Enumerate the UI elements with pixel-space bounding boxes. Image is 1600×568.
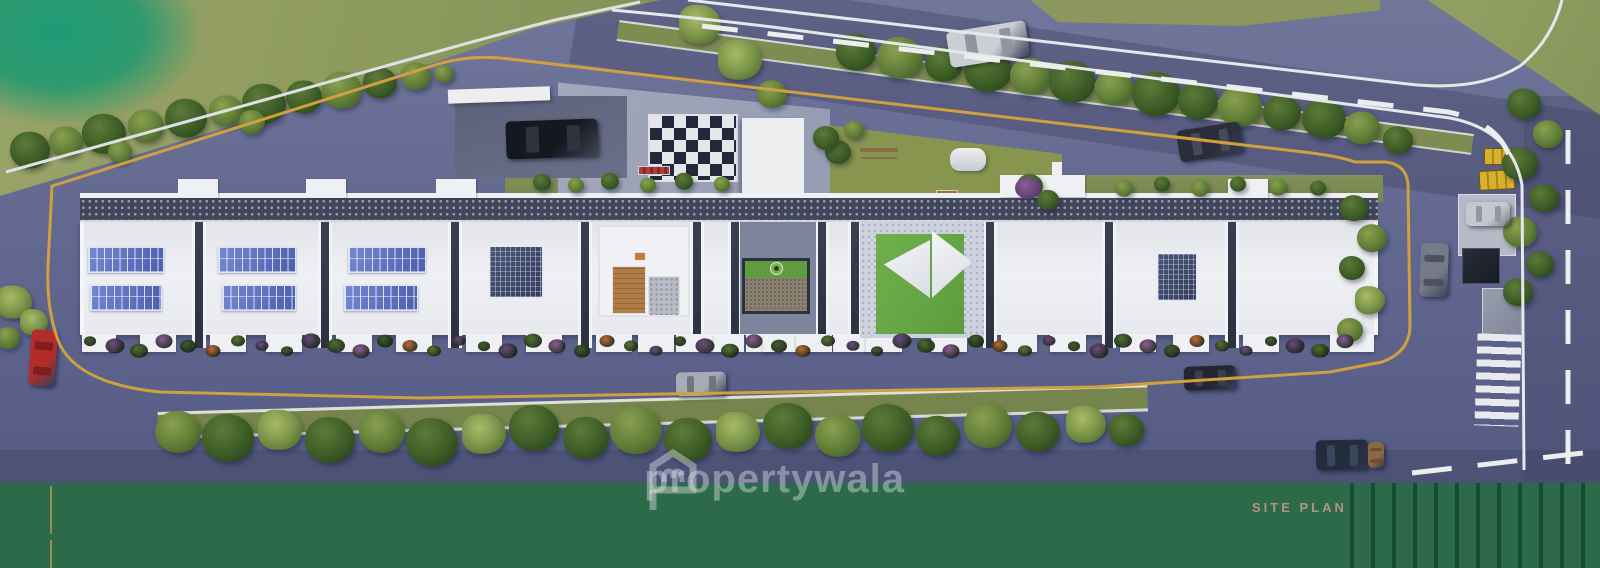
watermark: propertywala <box>644 444 984 514</box>
watermark-text: propertywala <box>644 457 905 502</box>
site-plan-label: SITE PLAN <box>1252 500 1347 515</box>
south-road-dashes <box>1412 451 1600 473</box>
accent-line <box>50 540 52 568</box>
stripe-pattern <box>1350 483 1600 568</box>
main-road-south-edge <box>612 10 1524 470</box>
main-road-dashes <box>702 26 1510 158</box>
yellow-loop-line <box>48 57 1410 398</box>
site-plan-render: SITE PLAN propertywala <box>0 0 1600 568</box>
accent-line <box>50 486 52 534</box>
sidewalk-edge-nw <box>6 2 640 172</box>
